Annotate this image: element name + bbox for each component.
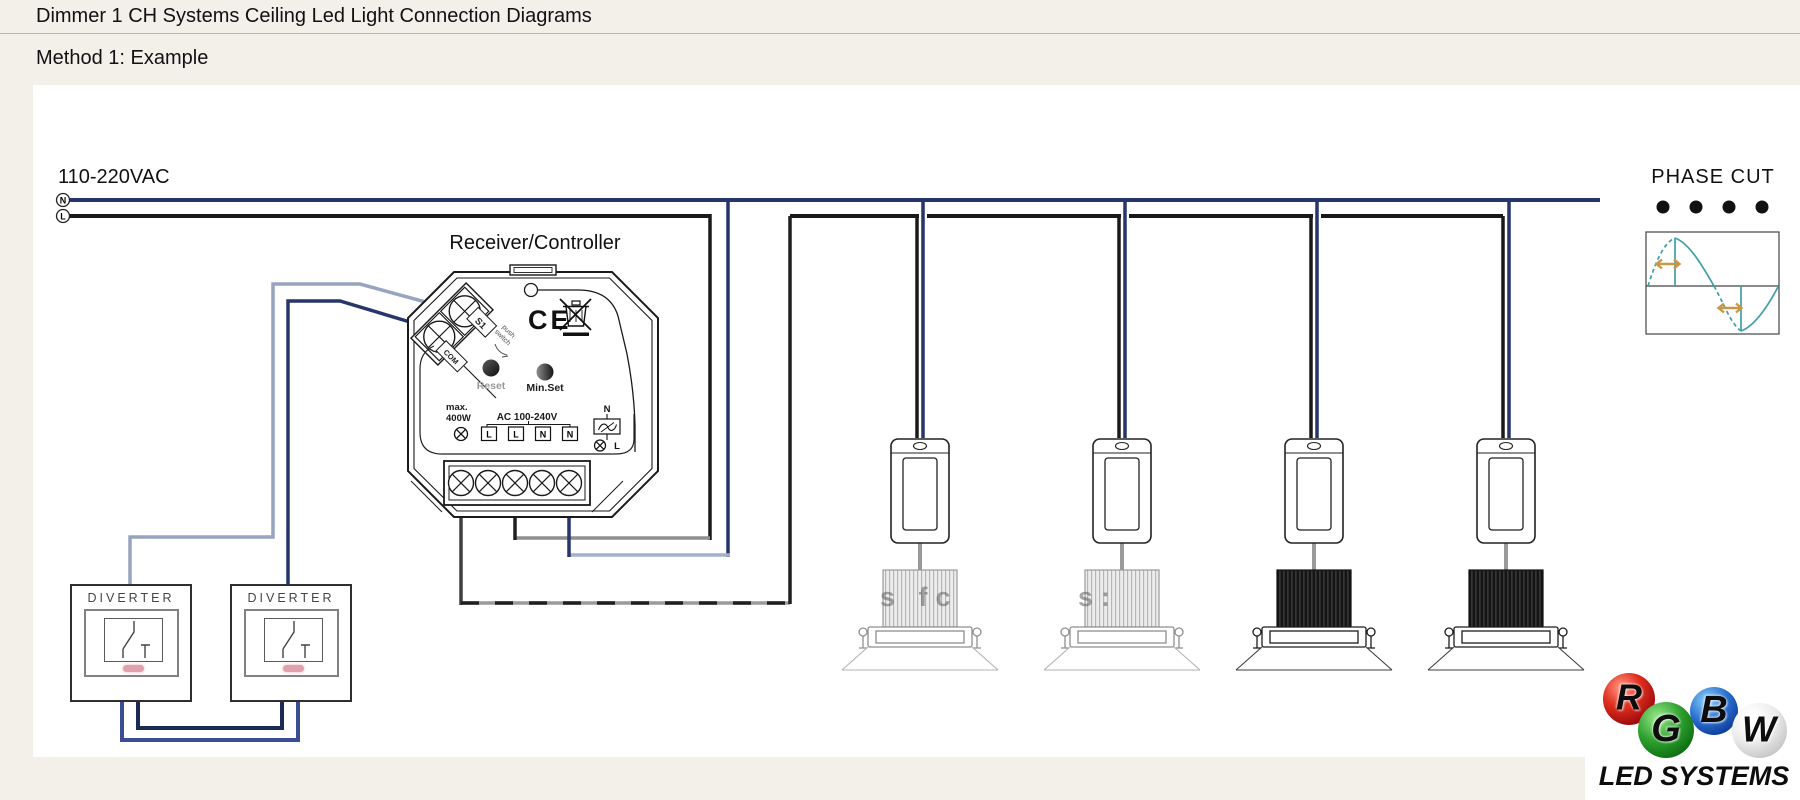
led-driver-4 <box>1476 437 1536 572</box>
diverter-loop-inner <box>138 700 282 728</box>
svg-text:N: N <box>567 430 574 440</box>
max-power-line1: max. <box>446 402 468 413</box>
svg-text:L: L <box>513 430 519 440</box>
svg-text:L: L <box>486 430 492 440</box>
led-driver-1 <box>890 437 950 572</box>
two-way-switch-symbol <box>265 619 322 661</box>
watermark-text-2: s: <box>1078 582 1118 613</box>
diverter-label: DIVERTER <box>72 591 190 605</box>
reset-button[interactable] <box>483 360 500 377</box>
diverter-indicator-light <box>123 665 144 672</box>
ce-mark: CE <box>528 305 572 335</box>
min-set-button[interactable] <box>537 364 554 381</box>
svg-text:N: N <box>540 430 547 440</box>
led-driver-2 <box>1092 437 1152 572</box>
svg-text:L: L <box>614 441 620 452</box>
downlight-4 <box>1418 566 1594 678</box>
two-way-switch-symbol <box>105 619 162 661</box>
logo-caption: LED SYSTEMS <box>1595 761 1793 792</box>
svg-text:N: N <box>60 195 67 205</box>
driver-drop-wires <box>917 200 1509 438</box>
diverter-loop-outer <box>122 700 298 740</box>
downlight-3 <box>1226 566 1402 678</box>
logo-letter-g: G <box>1651 708 1681 751</box>
diverter-switch-window[interactable] <box>264 618 323 662</box>
svg-text:L: L <box>60 211 66 221</box>
watermark-text-1: s fc <box>880 582 959 613</box>
logo-letter-w: W <box>1742 708 1776 750</box>
neutral-terminal-symbol: N <box>57 194 70 207</box>
led-driver-3 <box>1284 437 1344 572</box>
diverter-indicator-light <box>283 665 304 672</box>
ac-rating: AC 100-240V <box>497 412 558 423</box>
logo-letter-b: B <box>1700 689 1727 732</box>
reset-button-label: Reset <box>477 380 506 392</box>
svg-text:N: N <box>604 404 611 415</box>
diverter-frame <box>244 609 339 677</box>
diverter-label: DIVERTER <box>232 591 350 605</box>
rgbw-logo: R G B W LED SYSTEMS <box>1595 665 1795 795</box>
diverter-switch-2: DIVERTER <box>230 584 352 702</box>
downlight-2 <box>1034 566 1210 678</box>
phase-cut-dots <box>1650 199 1776 215</box>
phase-cut-waveform <box>1645 230 1781 336</box>
max-power-line2: 400W <box>446 413 471 424</box>
receiver-controller: S1 COM push switch CE Reset Min.Set max.… <box>398 262 668 552</box>
diverter-switch-window[interactable] <box>104 618 163 662</box>
page: { "page": { "title": "Dimmer 1 CH System… <box>0 0 1800 800</box>
line-terminal-symbol: L <box>57 210 70 223</box>
logo-letter-r: R <box>1616 676 1642 718</box>
receiver-top-tab <box>510 265 556 275</box>
diverter-switch-1: DIVERTER <box>70 584 192 702</box>
min-set-button-label: Min.Set <box>526 382 564 394</box>
diverter-frame <box>84 609 179 677</box>
